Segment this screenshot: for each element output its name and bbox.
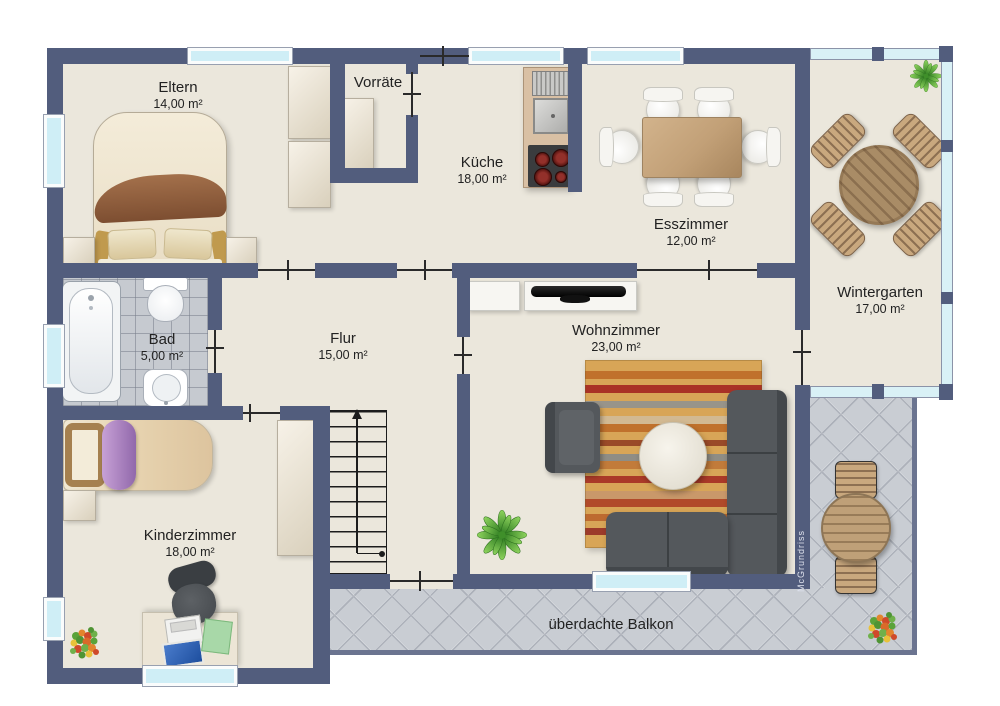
tv-stand-icon (560, 295, 590, 303)
door-tick (419, 571, 421, 591)
room-area: 18,00 m² (144, 544, 237, 559)
sofa-bottom-icon (606, 512, 728, 577)
chair-back-icon (694, 192, 734, 207)
room-label-kueche: Küche 18,00 m² (457, 154, 506, 186)
door-balkon (390, 580, 453, 582)
double-bed-icon (93, 112, 227, 264)
glass-pillar (872, 47, 884, 61)
room-name: Esszimmer (654, 216, 728, 234)
door-tick (708, 260, 710, 280)
wall-eltern-flur (47, 263, 258, 278)
wall-vorraete-left (330, 48, 345, 183)
chair-back-icon (694, 87, 734, 102)
room-name: Wohnzimmer (572, 322, 660, 340)
sofa-seam (727, 452, 777, 454)
dining-chair-icon (605, 130, 639, 164)
headboard-icon (65, 423, 105, 487)
room-name: Flur (318, 330, 367, 348)
glass-pillar (939, 384, 953, 400)
drain-icon (164, 401, 168, 405)
pillow-icon (107, 228, 157, 260)
room-name: Wintergarten (837, 284, 923, 302)
room-name: Vorräte (354, 74, 402, 92)
room-area: 15,00 m² (318, 347, 367, 362)
room-label-wintergarten: Wintergarten 17,00 m² (837, 284, 923, 316)
sofa-seam (727, 513, 777, 515)
floor-plan: Eltern 14,00 m² Vorräte Küche 18,00 m² E… (0, 0, 1000, 706)
door-tick (403, 93, 421, 95)
balcony-railing-bottom (330, 650, 917, 655)
green-folder-icon (201, 618, 233, 654)
wall-kueche-esszimmer (568, 48, 582, 192)
kids-bed-icon (63, 419, 213, 491)
bathtub-basin-icon (69, 288, 113, 394)
room-name: überdachte Balkon (548, 616, 673, 634)
room-name: Bad (141, 331, 183, 349)
chair-back-icon (766, 127, 781, 167)
balcony-railing-right (912, 398, 917, 655)
glass-wall-right (941, 48, 953, 398)
door-wintergarten (801, 330, 803, 385)
toys-icon (66, 624, 106, 664)
wall-bad-flur (208, 263, 222, 330)
armchair-seat-icon (559, 410, 594, 465)
stove-icon (528, 145, 573, 187)
sofa-right-icon (727, 390, 787, 577)
room-name: Eltern (153, 79, 202, 97)
drain-icon (88, 295, 94, 301)
dining-table-icon (642, 117, 742, 178)
stair-walkline (356, 413, 358, 553)
shelf-icon (342, 98, 374, 170)
room-name: Kinderzimmer (144, 527, 237, 545)
coffee-table-icon (639, 422, 707, 490)
bathtub-icon (62, 281, 121, 402)
burner-icon (535, 152, 550, 167)
opening-top-wall (420, 55, 469, 57)
room-label-balkon: überdachte Balkon (548, 616, 673, 634)
wall-esszimmer-wintergarten (795, 48, 810, 330)
balcony-table-icon (821, 493, 891, 563)
stair-start-dot (379, 551, 385, 557)
plant-icon (910, 60, 942, 92)
glass-pillar (872, 384, 884, 399)
window-eltern-left (44, 115, 64, 187)
room-label-wohnzimmer: Wohnzimmer 23,00 m² (572, 322, 660, 354)
plant-icon (477, 510, 527, 560)
door-tick (206, 347, 224, 349)
sink-bowl-icon (152, 374, 181, 402)
door-tick (249, 404, 251, 422)
glass-pillar (939, 46, 953, 62)
wall-vorraete-bottom (330, 168, 418, 183)
room-area: 5,00 m² (141, 348, 183, 363)
wardrobe-icon (288, 141, 331, 208)
toilet-bowl-icon (147, 285, 184, 322)
room-area: 17,00 m² (837, 301, 923, 316)
chair-back-icon (643, 87, 683, 102)
room-area: 18,00 m² (457, 171, 506, 186)
sink-icon (533, 98, 569, 134)
opening-esszimmer-wohnzimmer (637, 269, 757, 271)
wall-wohnzimmer-bottom (690, 574, 810, 589)
window-kinderzimmer-left (44, 598, 64, 640)
room-name: Küche (457, 154, 506, 172)
burner-icon (555, 171, 567, 183)
room-label-bad: Bad 5,00 m² (141, 331, 183, 363)
pillow-icon (102, 420, 136, 490)
window-bad-left (44, 325, 64, 387)
room-label-esszimmer: Esszimmer 12,00 m² (654, 216, 728, 248)
toilet-icon (143, 277, 188, 323)
door-bad (214, 330, 216, 373)
nightstand-icon (63, 237, 95, 264)
round-garden-table-icon (839, 145, 919, 225)
pillow-icon (163, 228, 213, 260)
sink-drainer-icon (532, 71, 569, 96)
wall-flur-wohnzimmer (457, 263, 470, 337)
window-esszimmer-top (588, 48, 683, 64)
bath-sink-icon (143, 369, 188, 407)
room-label-eltern: Eltern 14,00 m² (153, 79, 202, 111)
room-area: 12,00 m² (654, 233, 728, 248)
dining-chair-icon (741, 130, 775, 164)
window-wohnzimmer-bottom (593, 572, 690, 591)
glass-pillar (941, 292, 953, 304)
room-area: 14,00 m² (153, 96, 202, 111)
blanket-icon (93, 172, 227, 224)
staircase-icon (327, 410, 387, 574)
laptop-keyboard-icon (170, 619, 197, 633)
flowers-icon (864, 609, 904, 649)
burner-icon (534, 168, 552, 186)
wall-kinderzimmer-top (47, 406, 243, 420)
wardrobe-icon (277, 420, 318, 556)
room-label-vorraete: Vorräte (354, 74, 402, 92)
room-label-kinderzimmer: Kinderzimmer 18,00 m² (144, 527, 237, 559)
door-tick (454, 354, 472, 356)
nightstand-icon (226, 237, 257, 264)
tap-icon (551, 114, 555, 118)
stair-arrow-up-icon (352, 409, 362, 419)
room-label-flur: Flur 15,00 m² (318, 330, 367, 362)
glass-pillar (941, 140, 953, 152)
sofa-seam (667, 512, 669, 567)
door-tick (287, 260, 289, 280)
door-tick (793, 351, 811, 353)
tap-icon (89, 306, 93, 310)
nightstand-icon (63, 490, 96, 521)
wall-kueche-wohnzimmer (452, 263, 637, 278)
opening-tick (442, 46, 444, 66)
wall-flur-wohnzimmer (457, 374, 470, 588)
kitchen-unit-icon (523, 67, 570, 188)
wall-eltern-flur (315, 263, 397, 278)
chair-back-icon (599, 127, 614, 167)
door-tick (424, 260, 426, 280)
wall-kinderzimmer-right (313, 406, 330, 684)
wall-vorraete-right (406, 115, 418, 168)
room-area: 23,00 m² (572, 339, 660, 354)
sideboard-icon (467, 281, 520, 311)
window-eltern-top (188, 48, 292, 64)
watermark: McGrundriss (796, 528, 806, 592)
window-kueche-top (469, 48, 563, 64)
wall-wohnzimmer-bottom (453, 574, 593, 589)
armchair-icon (545, 402, 600, 473)
wardrobe-icon (288, 66, 331, 139)
wall-flur-balkon (313, 574, 390, 589)
chair-back-icon (643, 192, 683, 207)
window-kinderzimmer-bottom (143, 666, 237, 686)
